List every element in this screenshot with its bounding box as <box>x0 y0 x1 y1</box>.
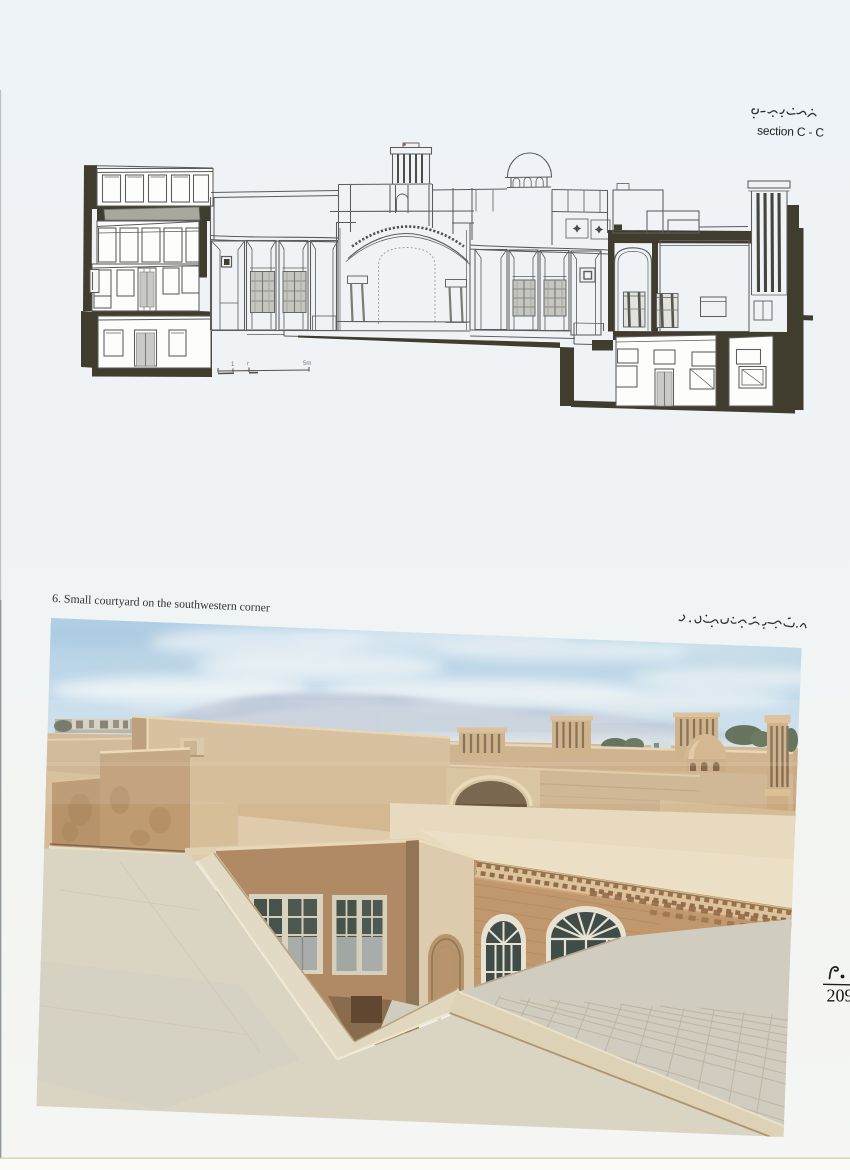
svg-text:5m: 5m <box>303 361 311 367</box>
svg-text:209: 209 <box>827 986 850 1006</box>
svg-text:section C - C: section C - C <box>757 124 825 140</box>
svg-text:1: 1 <box>231 362 235 368</box>
svg-text:6. Small courtyard on the sout: 6. Small courtyard on the southwestern c… <box>52 591 270 614</box>
svg-text:r: r <box>247 362 249 368</box>
